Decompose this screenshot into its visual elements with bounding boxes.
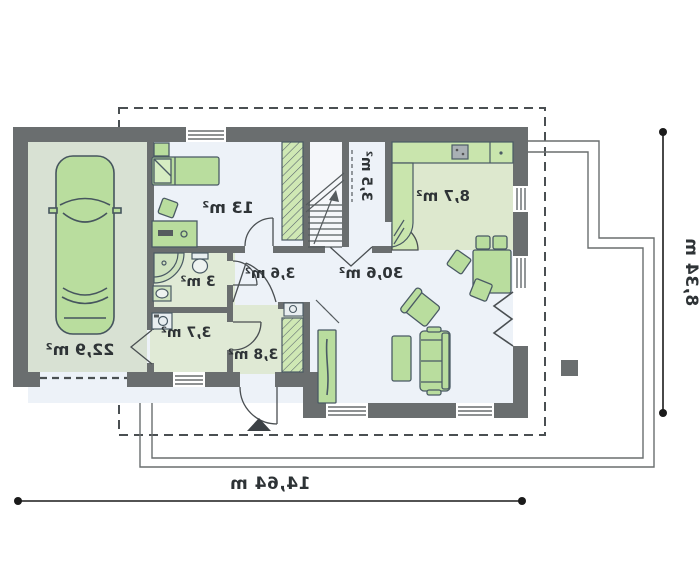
bed-icon — [152, 157, 219, 185]
dining-chair — [493, 236, 507, 249]
dining-chair — [476, 236, 490, 249]
room-label-bathroom: 3 m² — [180, 274, 215, 290]
room-label-storage: 3,5 m² — [358, 151, 374, 201]
wardrobe-vestibule — [282, 318, 303, 372]
stove-icon — [452, 145, 468, 159]
window-living-right — [513, 256, 528, 290]
window-living-bottom-1 — [326, 403, 368, 418]
dimension-depth-label: 8,34 m — [681, 238, 700, 307]
sofa-icon — [420, 327, 450, 395]
water-heater-icon — [284, 303, 303, 316]
sink-icon — [153, 286, 171, 301]
room-label-bedroom: 13 m² — [202, 198, 254, 217]
coffee-table-icon — [392, 336, 411, 381]
room-label-vestibule: 3,8 m² — [228, 347, 278, 363]
window-kitchen-right — [513, 186, 528, 212]
window-living-bottom-2 — [456, 403, 494, 418]
room-label-living: 30,6 m² — [339, 264, 403, 282]
window-bedroom-top — [186, 127, 226, 142]
car-icon — [49, 156, 121, 334]
window-utility-bottom — [173, 372, 205, 387]
desk-icon — [152, 221, 197, 247]
dimension-right: 8,34 m — [659, 128, 700, 417]
chimney-block — [561, 360, 578, 376]
dimension-width-label: 14,64 m — [230, 474, 311, 494]
room-label-garage: 22,9 m² — [46, 340, 115, 359]
entrance-arrow — [247, 418, 271, 431]
floor-plan-page: 14,64 m 8,34 m — [0, 0, 700, 575]
room-label-utility: 3,7 m² — [161, 325, 211, 341]
room-label-kitchen: 8,7 m² — [416, 187, 470, 205]
wardrobe-bedroom — [282, 142, 303, 240]
tv-cabinet-icon — [318, 330, 336, 403]
floor-plan-svg: 14,64 m 8,34 m — [0, 0, 700, 575]
nightstand-icon — [154, 143, 169, 156]
toilet-icon — [192, 253, 208, 273]
room-label-hall: 3,6 m² — [245, 266, 295, 282]
dimension-bottom: 14,64 m — [14, 474, 526, 505]
